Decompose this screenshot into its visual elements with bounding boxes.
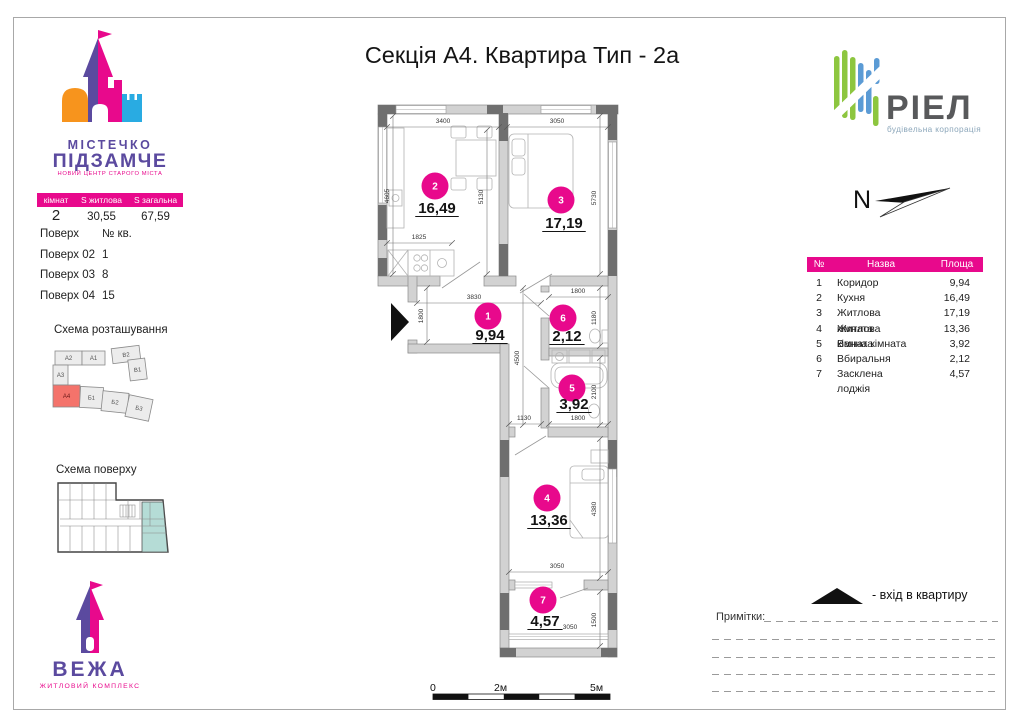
dimension-label: 1825 [412, 234, 427, 241]
castle-shapes [62, 30, 142, 122]
site-block-А4: А4 [53, 385, 80, 407]
dimension-label: 3050 [550, 563, 565, 570]
table-cell: Житлова кімната [831, 322, 918, 337]
site-block-А2: А2 [55, 351, 82, 365]
plan-windows [379, 106, 617, 640]
dimension-label: 1500 [591, 612, 598, 627]
mistechko-name-line2: ПІДЗАМЧЕ [40, 150, 180, 173]
table-row: 5Ванна кімната3,92 [807, 337, 983, 352]
svg-text:16,49: 16,49 [418, 200, 456, 217]
rooms-table: № Назва Площа 1Коридор9,942Кухня16,493Жи… [807, 257, 983, 382]
table-row: 2Кухня16,49 [807, 291, 983, 306]
vezha-name: ВЕЖА [30, 658, 150, 682]
compass-arrow-outline [880, 188, 950, 217]
floors-list: Поверх № кв. Поверх 021Поверх 038Поверх … [40, 228, 132, 310]
site-block-В1: В1 [128, 358, 147, 381]
summary-col-living: S житлова [75, 193, 128, 207]
apartment-floor-plan: 3400305046055130573018253830180018001180… [370, 90, 715, 705]
dimension-label: 1800 [571, 288, 586, 295]
table-cell: Коридор [831, 276, 918, 291]
floors-cell: 1 [102, 249, 108, 261]
table-cell: 3 [807, 306, 831, 321]
room-marker-5: 53,92 [556, 375, 591, 414]
svg-text:7: 7 [540, 596, 546, 607]
floors-row: Поверх 038 [40, 269, 132, 281]
mistechko-tagline: НОВИЙ ЦЕНТР СТАРОГО МІСТА [40, 171, 180, 177]
dimension-label: 5730 [591, 190, 598, 205]
svg-text:В2: В2 [122, 352, 131, 359]
mistechko-castle-icon [55, 28, 165, 128]
riel-leaf-icon [830, 50, 886, 126]
summary-col-total: S загальна [128, 193, 183, 207]
table-cell: 2,12 [918, 352, 983, 367]
notes-line [764, 621, 998, 622]
notes-line [712, 691, 998, 692]
site-block-А3: А3 [53, 365, 68, 385]
dimension-label: 4500 [514, 350, 521, 365]
table-cell: 3,92 [918, 337, 983, 352]
floors-col-apt: № кв. [102, 228, 132, 240]
entrance-legend-label: - вхід в квартиру [872, 588, 968, 602]
page-title: Секція А4. Квартира Тип - 2а [320, 42, 724, 69]
svg-text:А1: А1 [90, 356, 98, 362]
dimension-label: 5130 [478, 189, 485, 204]
table-cell: 6 [807, 352, 831, 367]
room-marker-7: 74,57 [527, 587, 562, 631]
svg-text:1: 1 [485, 312, 491, 323]
table-cell: 17,19 [918, 306, 983, 321]
notes-label: Примітки: [716, 611, 765, 623]
floor-scheme-title: Схема поверху [56, 464, 137, 476]
table-cell: 16,49 [918, 291, 983, 306]
svg-text:Б2: Б2 [111, 400, 120, 407]
svg-text:4: 4 [544, 494, 550, 505]
table-row: 7Засклена лоджія4,57 [807, 367, 983, 382]
svg-text:2: 2 [432, 182, 438, 193]
site-scheme: А2А1В2В1А3А4Б1Б2Б3 [45, 342, 163, 430]
dimension-label: 3400 [436, 118, 451, 125]
site-block-Б2: Б2 [101, 391, 129, 414]
room-marker-2: 216,49 [415, 173, 459, 218]
scale-label-2m: 2м [494, 682, 507, 694]
table-row: 3Житлова кімната17,19 [807, 306, 983, 321]
apartment-summary-values: 2 30,55 67,59 [37, 206, 183, 224]
riel-name: РІЕЛ [886, 89, 973, 127]
dimension-label: 4380 [591, 501, 598, 516]
floors-cell: Поверх 02 [40, 249, 102, 261]
table-row: 1Коридор9,94 [807, 276, 983, 291]
floor-scheme [52, 478, 174, 558]
vezha-tagline: ЖИТЛОВИЙ КОМПЛЕКС [30, 683, 150, 690]
table-cell: 13,36 [918, 322, 983, 337]
table-cell: 7 [807, 367, 831, 382]
entrance-triangle-icon [810, 585, 864, 605]
north-compass-icon: N [845, 175, 955, 220]
rooms-col-num: № [807, 257, 831, 272]
vezha-tower-icon [72, 580, 108, 656]
scale-label-0: 0 [430, 682, 436, 694]
svg-text:9,94: 9,94 [475, 327, 505, 344]
svg-text:17,19: 17,19 [545, 215, 583, 232]
floor-highlight-apartment [142, 502, 168, 552]
svg-text:3,92: 3,92 [559, 396, 588, 413]
dimension-label: 1800 [571, 415, 586, 422]
svg-text:А2: А2 [65, 356, 73, 362]
svg-text:А3: А3 [57, 373, 65, 379]
floors-col-floor: Поверх [40, 228, 102, 240]
table-cell: Кухня [831, 291, 918, 306]
table-cell: 4,57 [918, 367, 983, 382]
notes-line [712, 657, 998, 658]
apartment-summary-header: кімнат S житлова S загальна [37, 193, 183, 207]
svg-text:6: 6 [560, 314, 566, 325]
table-cell: 4 [807, 322, 831, 337]
scale-bar-segments [433, 694, 610, 700]
site-block-Б3: Б3 [125, 395, 153, 422]
table-cell: Ванна кімната [831, 337, 918, 352]
floors-cell: 15 [102, 290, 115, 302]
svg-text:3: 3 [558, 196, 564, 207]
plan-window-midlines [383, 110, 613, 637]
svg-text:2,12: 2,12 [552, 328, 581, 345]
floors-cell: Поверх 04 [40, 290, 102, 302]
dimension-label: 1180 [591, 311, 598, 325]
dimension-label: 1800 [418, 308, 425, 323]
riel-tagline: будівельна корпорація [887, 125, 981, 134]
table-cell: Засклена лоджія [831, 367, 918, 382]
site-scheme-title: Схема розташування [54, 324, 168, 336]
floors-cell: Поверх 03 [40, 269, 102, 281]
notes-line [712, 674, 998, 675]
rooms-count: 2 [37, 207, 75, 224]
riel-logo: РІЕЛ будівельна корпорація [825, 42, 985, 137]
table-row: 4Житлова кімната13,36 [807, 322, 983, 337]
svg-text:5: 5 [569, 384, 575, 395]
table-cell: Вбиральня [831, 352, 918, 367]
compass-n-label: N [853, 186, 871, 214]
site-block-А1: А1 [82, 351, 105, 365]
table-cell: Житлова кімната [831, 306, 918, 321]
sheet: Секція А4. Квартира Тип - 2а МІСТЕЧКО ПІ… [0, 0, 1024, 728]
svg-text:Б1: Б1 [88, 396, 96, 402]
table-cell: 1 [807, 276, 831, 291]
total-area: 67,59 [128, 211, 183, 223]
dimension-label: 3830 [467, 294, 482, 301]
dimension-label: 3050 [550, 118, 565, 125]
floors-row: Поверх 021 [40, 249, 132, 261]
living-area: 30,55 [75, 211, 128, 223]
rooms-col-name: Назва [831, 257, 931, 272]
table-cell: 2 [807, 291, 831, 306]
summary-col-rooms: кімнат [37, 193, 75, 207]
rooms-col-area: Площа [931, 257, 983, 272]
svg-text:4,57: 4,57 [530, 613, 559, 630]
svg-text:13,36: 13,36 [530, 512, 568, 529]
dimension-label: 2100 [591, 384, 598, 399]
room-marker-6: 62,12 [549, 305, 584, 346]
floors-list-header: Поверх № кв. [40, 228, 132, 240]
floors-cell: 8 [102, 269, 108, 281]
room-marker-3: 317,19 [542, 187, 586, 233]
site-block-Б1: Б1 [79, 386, 103, 408]
table-row: 6Вбиральня2,12 [807, 352, 983, 367]
floors-row: Поверх 0415 [40, 290, 132, 302]
dimension-label: 4605 [384, 188, 391, 203]
floors-rows: Поверх 021Поверх 038Поверх 0415 [40, 249, 132, 302]
table-cell: 9,94 [918, 276, 983, 291]
svg-text:В1: В1 [134, 367, 143, 374]
dimension-label: 1130 [517, 415, 531, 422]
scale-bar: 0 2м 5м [425, 680, 620, 705]
room-marker-4: 413,36 [527, 485, 571, 530]
dimension-label: 3050 [563, 624, 578, 631]
room-marker-1: 19,94 [472, 303, 507, 345]
notes-line [712, 639, 998, 640]
svg-text:А4: А4 [63, 394, 71, 400]
rooms-table-header: № Назва Площа [807, 257, 983, 272]
scale-label-5m: 5м [590, 682, 603, 694]
site-blocks: А2А1В2В1А3А4Б1Б2Б3 [53, 345, 153, 421]
plan-entrance-arrow [391, 303, 409, 341]
rooms-table-body: 1Коридор9,942Кухня16,493Житлова кімната1… [807, 276, 983, 382]
table-cell: 5 [807, 337, 831, 352]
